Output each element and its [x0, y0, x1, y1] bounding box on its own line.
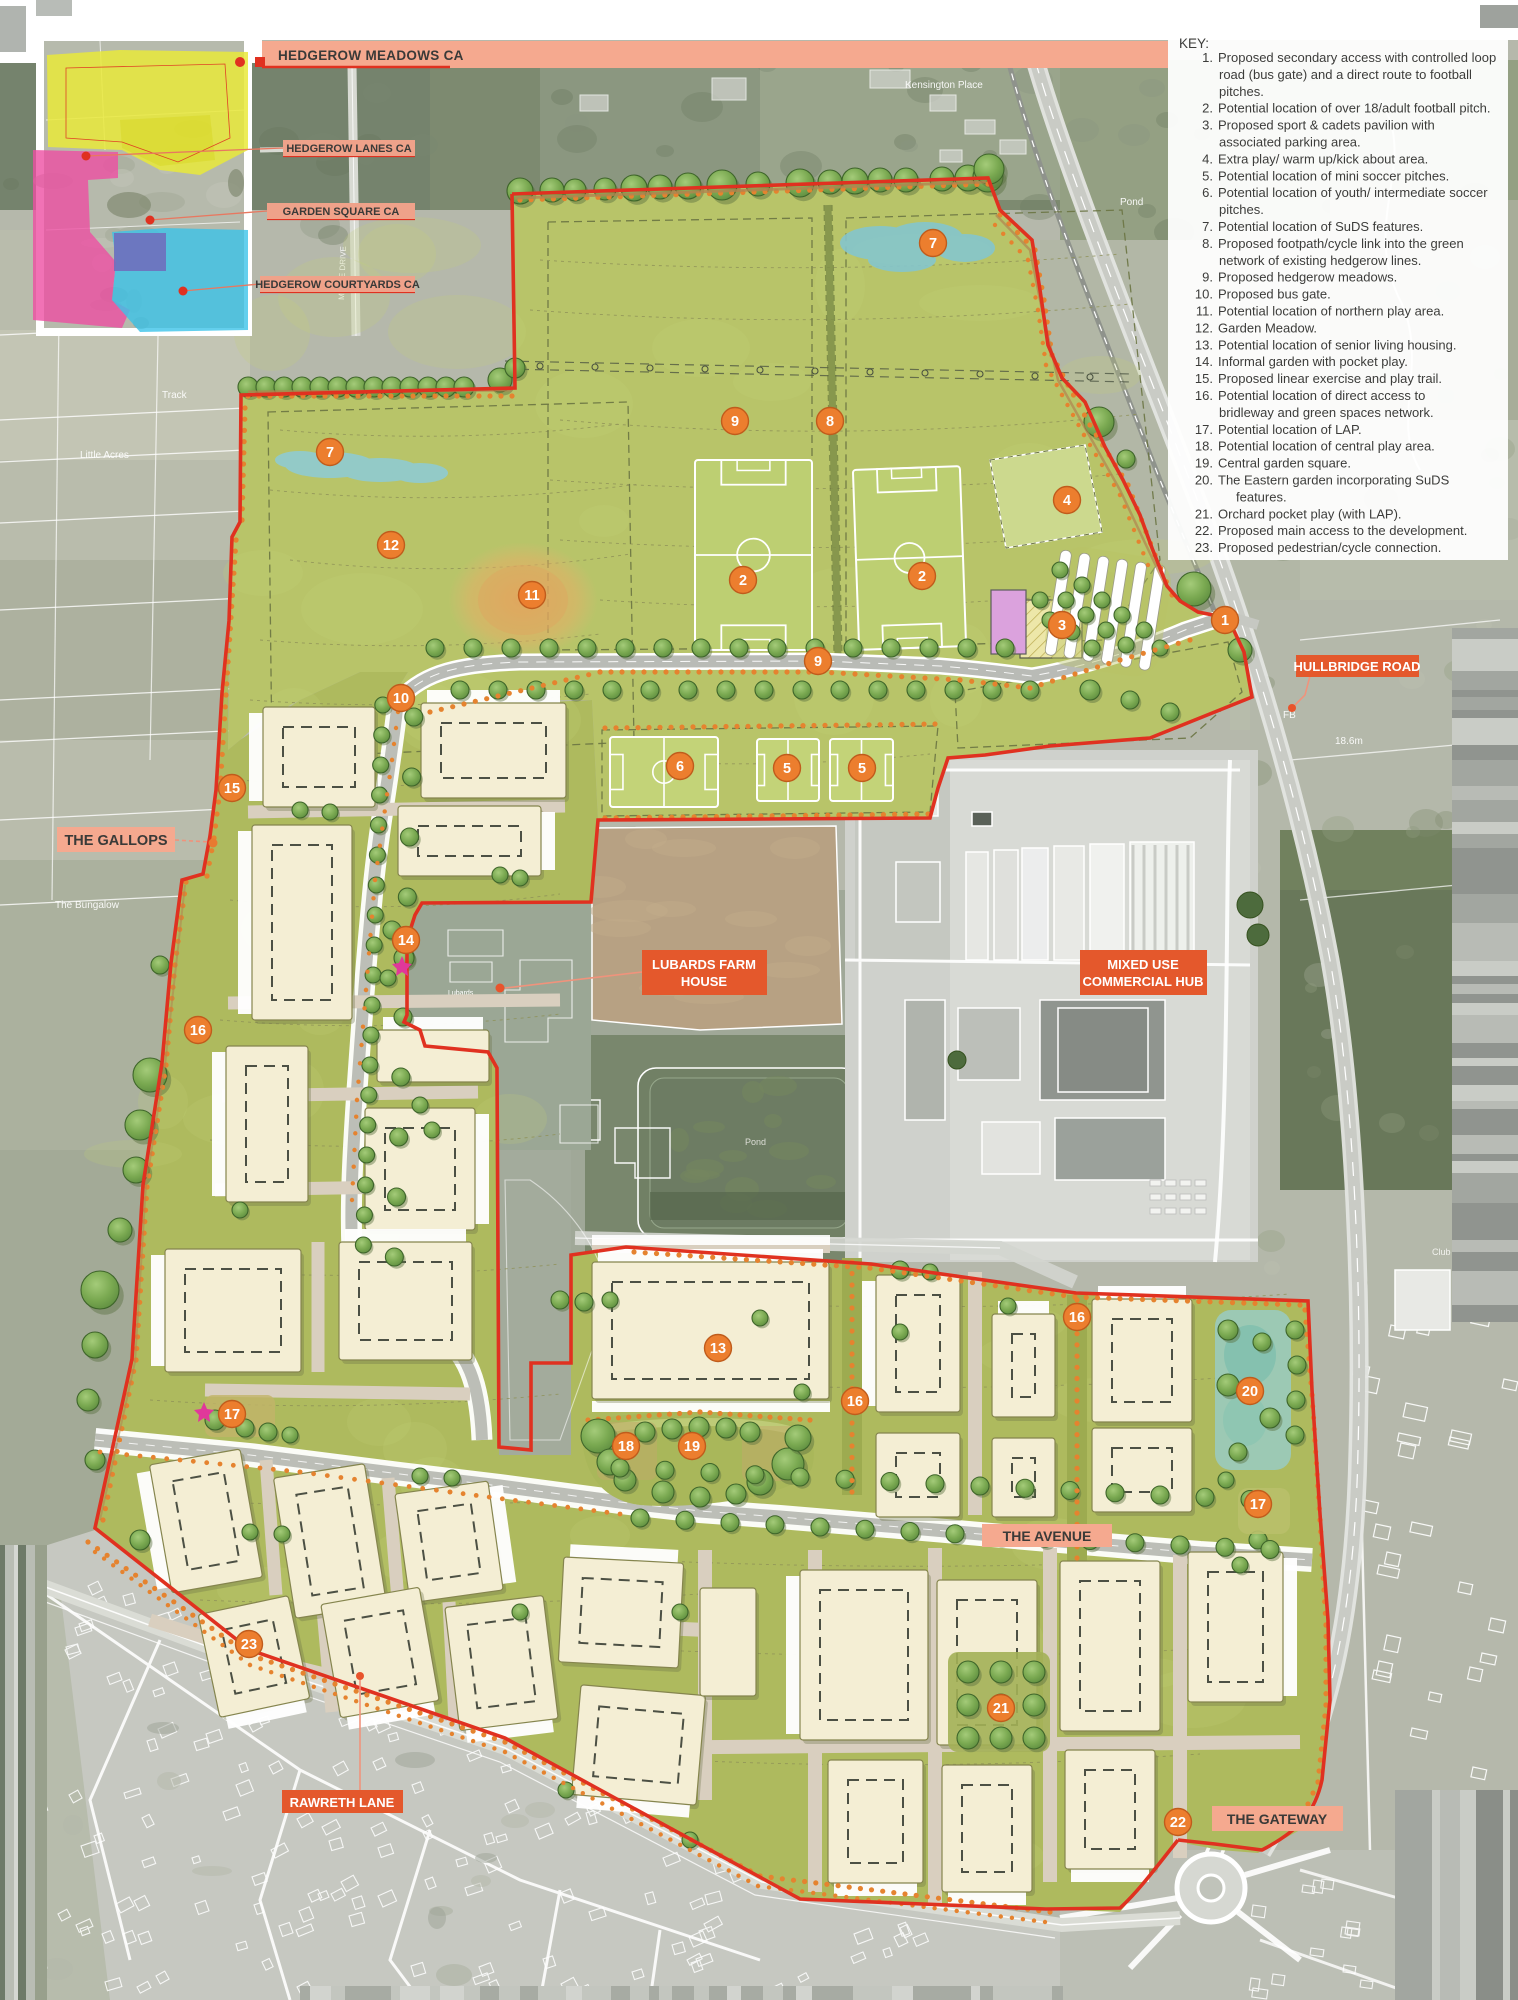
svg-text:17.: 17. [1195, 422, 1213, 437]
svg-text:14.: 14. [1195, 354, 1213, 369]
svg-text:Kensington Place: Kensington Place [905, 80, 983, 91]
svg-text:15: 15 [224, 781, 240, 797]
svg-text:14: 14 [398, 933, 414, 949]
svg-text:7: 7 [929, 236, 937, 252]
svg-text:THE AVENUE: THE AVENUE [1003, 1528, 1092, 1544]
svg-text:1: 1 [1221, 613, 1229, 629]
svg-text:KEY:: KEY: [1179, 36, 1209, 51]
svg-text:Potential location of mini soc: Potential location of mini soccer pitche… [1218, 168, 1449, 183]
svg-text:10: 10 [393, 691, 409, 707]
svg-text:5: 5 [783, 761, 791, 777]
svg-text:19: 19 [684, 1439, 700, 1455]
svg-text:Potential location of senior l: Potential location of senior living hous… [1218, 337, 1456, 352]
svg-text:18.: 18. [1195, 439, 1213, 454]
svg-text:5: 5 [858, 761, 866, 777]
svg-text:HEDGEROW LANES CA: HEDGEROW LANES CA [286, 143, 411, 155]
svg-text:GARDEN SQUARE CA: GARDEN SQUARE CA [283, 206, 400, 218]
svg-text:19.: 19. [1195, 456, 1213, 471]
svg-text:7.: 7. [1202, 219, 1213, 234]
svg-text:Proposed sport & cadets pavili: Proposed sport & cadets pavilion with [1218, 118, 1435, 133]
svg-text:16: 16 [847, 1394, 863, 1410]
svg-text:HEDGEROW MEADOWS CA: HEDGEROW MEADOWS CA [278, 48, 464, 63]
svg-text:road (bus gate) and a direct r: road (bus gate) and a direct route to fo… [1219, 67, 1472, 82]
svg-text:8.: 8. [1202, 236, 1213, 251]
svg-text:Proposed footpath/cycle link: Proposed footpath/cycle link into the gr… [1218, 236, 1464, 251]
svg-text:3: 3 [1058, 618, 1066, 634]
svg-text:HULLBRIDGE ROAD: HULLBRIDGE ROAD [1293, 659, 1420, 674]
svg-text:Potential location of over 18/: Potential location of over 18/adult foot… [1218, 101, 1490, 116]
svg-text:pitches.: pitches. [1219, 202, 1264, 217]
svg-text:Informal garden with pocket pl: Informal garden with pocket play. [1218, 354, 1408, 369]
svg-text:network of existing hedgerow l: network of existing hedgerow lines. [1219, 253, 1421, 268]
svg-text:FB: FB [1283, 710, 1296, 721]
svg-text:18: 18 [618, 1439, 634, 1455]
svg-text:22.: 22. [1195, 523, 1213, 538]
svg-text:15.: 15. [1195, 371, 1213, 386]
svg-text:11.: 11. [1196, 304, 1213, 319]
svg-text:Garden Meadow.: Garden Meadow. [1218, 320, 1317, 335]
svg-text:9: 9 [731, 414, 739, 430]
svg-text:17: 17 [1250, 1497, 1266, 1513]
svg-text:Track: Track [162, 390, 188, 401]
svg-text:16.: 16. [1195, 388, 1213, 403]
svg-text:THE GATEWAY: THE GATEWAY [1227, 1811, 1328, 1827]
svg-text:Potential location of northern: Potential location of northern play area… [1218, 304, 1444, 319]
svg-text:9.: 9. [1202, 270, 1213, 285]
svg-text:20.: 20. [1195, 473, 1213, 488]
svg-text:22: 22 [1170, 1815, 1186, 1831]
svg-text:12.: 12. [1195, 320, 1213, 335]
svg-text:6.: 6. [1202, 185, 1213, 200]
svg-text:pitches.: pitches. [1219, 84, 1264, 99]
svg-text:8: 8 [826, 414, 834, 430]
svg-text:COMMERCIAL HUB: COMMERCIAL HUB [1082, 974, 1203, 989]
svg-text:Orchard pocket play (with LAP): Orchard pocket play (with LAP). [1218, 506, 1402, 521]
svg-text:Club: Club [1432, 1247, 1451, 1257]
svg-text:RAWRETH LANE: RAWRETH LANE [290, 1795, 395, 1810]
svg-text:3.: 3. [1202, 118, 1213, 133]
svg-text:Potential location of SuDS fea: Potential location of SuDS features. [1218, 219, 1423, 234]
svg-text:16: 16 [190, 1023, 206, 1039]
svg-text:Proposed bus gate.: Proposed bus gate. [1218, 287, 1331, 302]
svg-text:Proposed pedestrian/cycle conn: Proposed pedestrian/cycle connection. [1218, 540, 1441, 555]
svg-text:Proposed hedgerow meadows.: Proposed hedgerow meadows. [1218, 270, 1397, 285]
svg-text:The Bungalow: The Bungalow [55, 900, 120, 911]
svg-text:9: 9 [814, 654, 822, 670]
svg-text:features.: features. [1236, 489, 1287, 504]
svg-text:23: 23 [241, 1637, 257, 1653]
svg-text:LUBARDS FARM: LUBARDS FARM [652, 957, 756, 972]
svg-text:1.: 1. [1202, 50, 1213, 65]
svg-text:4.: 4. [1202, 151, 1213, 166]
svg-text:18.6m: 18.6m [1335, 736, 1363, 747]
svg-text:6: 6 [676, 759, 684, 775]
svg-text:2: 2 [918, 569, 926, 585]
svg-text:Pond: Pond [1120, 197, 1143, 208]
svg-text:12: 12 [383, 538, 399, 554]
svg-text:2.: 2. [1202, 101, 1213, 116]
svg-text:HOUSE: HOUSE [681, 974, 728, 989]
svg-text:11: 11 [524, 588, 539, 604]
svg-text:Pond: Pond [745, 1137, 766, 1147]
svg-text:Central garden square.: Central garden square. [1218, 456, 1351, 471]
svg-text:2: 2 [739, 573, 747, 589]
svg-text:20: 20 [1242, 1384, 1258, 1400]
svg-text:THE GALLOPS: THE GALLOPS [64, 833, 167, 849]
svg-text:21: 21 [993, 1701, 1009, 1717]
svg-text:21.: 21. [1195, 506, 1213, 521]
svg-text:Potential location of youth/ i: Potential location of youth/ intermediat… [1218, 185, 1488, 200]
svg-text:associated parking area.: associated parking area. [1219, 135, 1361, 150]
svg-text:4: 4 [1063, 493, 1071, 509]
svg-text:23.: 23. [1195, 540, 1213, 555]
svg-text:Extra play/ warm up/kick about: Extra play/ warm up/kick about area. [1218, 151, 1428, 166]
svg-text:Potential location of central: Potential location of central play area. [1218, 439, 1435, 454]
svg-text:17: 17 [224, 1407, 240, 1423]
svg-text:Proposed secondary access with: Proposed secondary access with controlle… [1218, 50, 1496, 65]
svg-text:10.: 10. [1195, 287, 1213, 302]
svg-text:HEDGEROW COURTYARDS CA: HEDGEROW COURTYARDS CA [255, 279, 420, 291]
svg-text:Potential location of direct: Potential location of direct access to [1218, 388, 1425, 403]
svg-text:bridleway and green spaces net: bridleway and green spaces network. [1219, 405, 1434, 420]
svg-text:Little Acres: Little Acres [80, 450, 129, 461]
svg-text:Potential location of LAP.: Potential location of LAP. [1218, 422, 1362, 437]
svg-text:7: 7 [326, 445, 334, 461]
svg-text:Proposed main access to the de: Proposed main access to the development. [1218, 523, 1467, 538]
svg-text:The Eastern garden incorporati: The Eastern garden incorporating SuDS [1218, 473, 1450, 488]
svg-text:13: 13 [710, 1341, 726, 1357]
svg-text:Proposed linear exercise and p: Proposed linear exercise and play trail. [1218, 371, 1442, 386]
svg-text:5.: 5. [1202, 168, 1213, 183]
svg-text:16: 16 [1069, 1310, 1085, 1326]
svg-text:13.: 13. [1195, 337, 1213, 352]
svg-text:MIXED USE: MIXED USE [1107, 957, 1179, 972]
